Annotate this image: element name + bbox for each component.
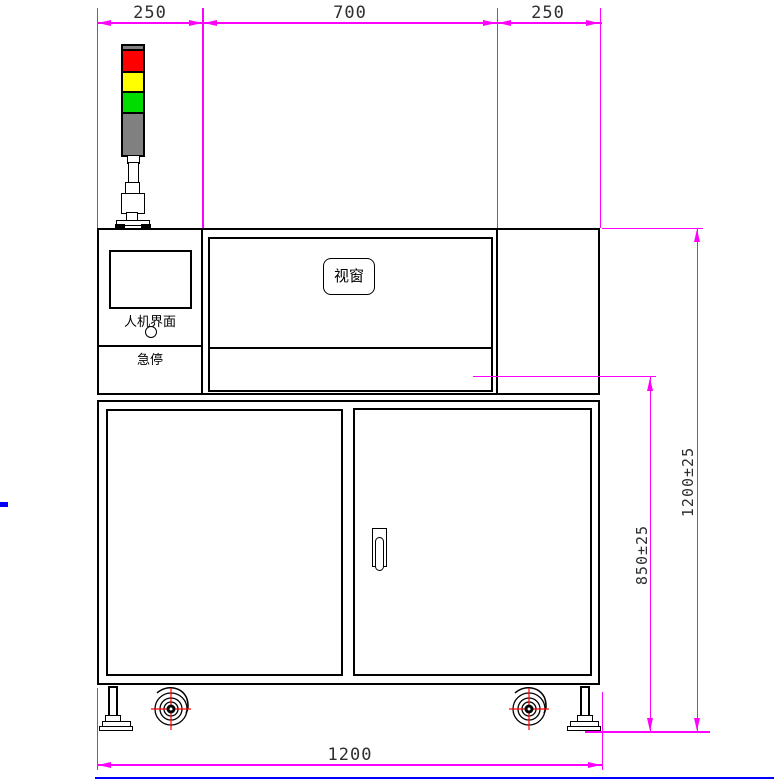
dim-label-top-right: 250: [518, 3, 578, 23]
cabinet-door-right: [353, 408, 592, 676]
arrow-icon: [586, 20, 599, 26]
ext-line-top-x600: [600, 8, 602, 228]
arrow-icon: [98, 762, 111, 768]
ground-reference-line: [585, 731, 710, 733]
dim-label-overall-width: 1200: [320, 745, 380, 765]
tower-light-pole: [128, 162, 139, 184]
arrow-icon: [98, 20, 111, 26]
arrow-icon: [498, 20, 511, 26]
ext-line-bottom-right: [602, 692, 604, 770]
arrow-icon: [483, 20, 496, 26]
tower-light-mount-block: [121, 193, 145, 214]
ext-line-bottom-left: [97, 688, 99, 770]
ext-line-top-x97: [97, 8, 99, 228]
viewport-label-box: 视窗: [323, 258, 375, 295]
arrow-icon: [647, 378, 653, 391]
dim-label-top-middle: 700: [320, 3, 380, 23]
tower-light-yellow-segment: [121, 71, 145, 93]
blue-edge-marker-bottom: [95, 777, 774, 779]
leveling-foot-left-base: [99, 726, 133, 731]
leveling-foot-right-post: [580, 686, 590, 718]
blue-edge-marker-left: [0, 502, 8, 507]
ext-line-top-x497: [497, 8, 499, 230]
cabinet-door-left: [106, 409, 343, 676]
arrow-icon: [189, 20, 202, 26]
dim-label-cabinet-height: 850±25: [633, 515, 651, 595]
ext-line-right-mid: [473, 376, 656, 378]
viewing-window-divider: [208, 347, 493, 349]
upper-frame-divider-left: [201, 228, 203, 395]
hmi-screen: [109, 250, 192, 309]
viewport-label: 视窗: [324, 259, 374, 293]
arrow-icon: [588, 762, 601, 768]
arrow-icon: [204, 20, 217, 26]
arrow-icon: [647, 718, 653, 731]
arrow-icon: [694, 229, 700, 242]
cad-drawing: 250 700 250 人机界面 急停 视窗: [0, 0, 774, 782]
leveling-foot-left-post: [108, 686, 118, 718]
dim-label-overall-height: 1200±25: [679, 437, 697, 527]
ext-line-top-x203: [202, 8, 204, 228]
tower-light-red-segment: [121, 49, 145, 73]
estop-panel-divider: [97, 345, 202, 347]
tower-light-green-segment: [121, 91, 145, 114]
tower-light-body: [121, 112, 145, 157]
ext-line-right-top: [602, 228, 703, 230]
estop-button: [145, 326, 157, 338]
caster-right-icon: [499, 679, 559, 739]
estop-label: 急停: [110, 349, 190, 368]
caster-left-icon: [141, 679, 201, 739]
upper-frame-divider-right: [496, 228, 498, 395]
arrow-icon: [694, 718, 700, 731]
dim-label-top-left: 250: [120, 3, 180, 23]
door-handle-slot: [375, 537, 384, 571]
